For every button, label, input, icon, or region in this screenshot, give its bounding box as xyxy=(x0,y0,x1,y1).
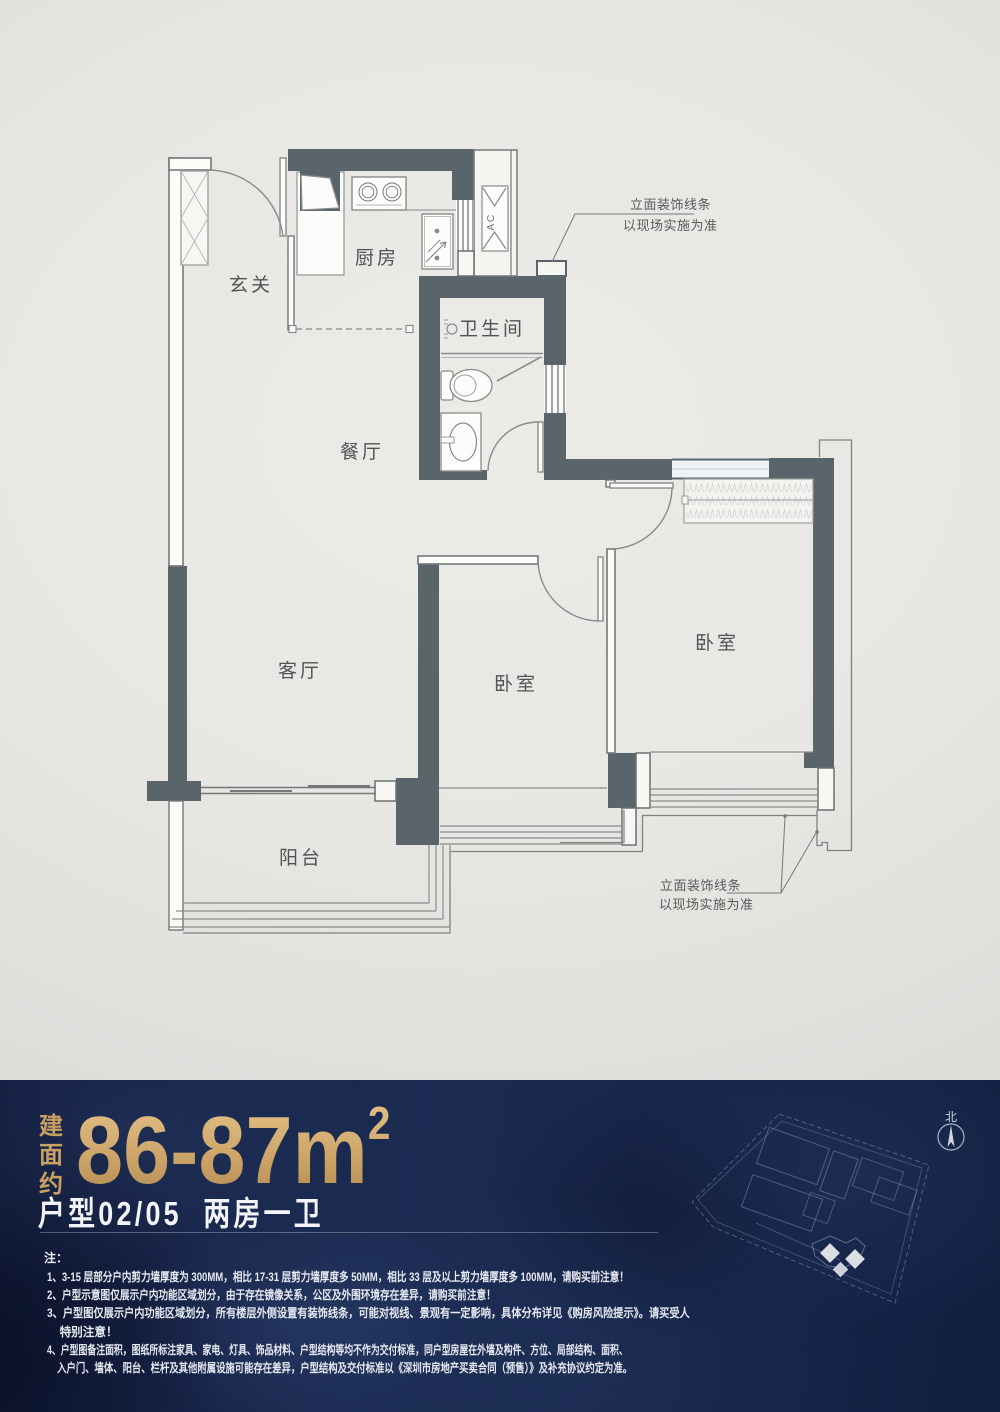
svg-text:卫生间: 卫生间 xyxy=(459,318,525,340)
svg-text:餐厅: 餐厅 xyxy=(340,441,384,463)
svg-text:厨房: 厨房 xyxy=(355,247,399,269)
svg-text:阳台: 阳台 xyxy=(279,847,323,869)
svg-text:以现场实施为准: 以现场实施为准 xyxy=(659,897,754,912)
svg-text:立面装饰线条: 立面装饰线条 xyxy=(630,197,711,212)
svg-text:卧室: 卧室 xyxy=(494,673,538,695)
svg-text:AC: AC xyxy=(485,213,497,231)
svg-text:客厅: 客厅 xyxy=(278,660,322,682)
svg-text:立面装饰线条: 立面装饰线条 xyxy=(660,878,741,893)
svg-text:卧室: 卧室 xyxy=(695,632,739,654)
svg-text:北: 北 xyxy=(945,1110,957,1124)
svg-text:玄关: 玄关 xyxy=(229,274,273,296)
svg-text:以现场实施为准: 以现场实施为准 xyxy=(623,218,718,233)
